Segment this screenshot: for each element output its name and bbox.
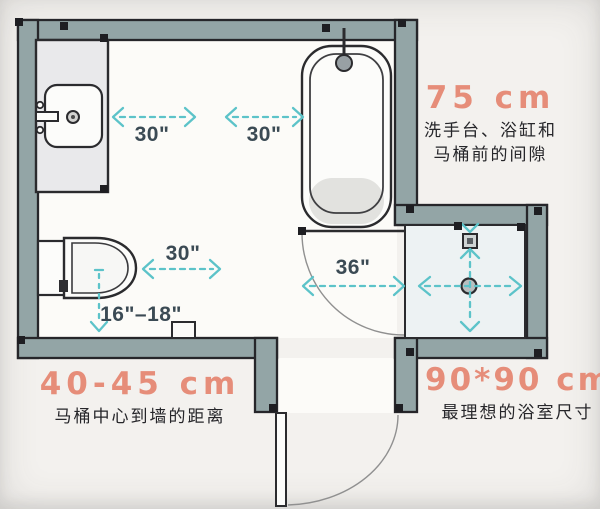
wall-shower-top bbox=[395, 205, 547, 225]
entry-door bbox=[276, 413, 398, 506]
dim-label-toilet-center: 16"–18" bbox=[100, 303, 182, 327]
entry-corridor-floor bbox=[277, 358, 395, 413]
entry-door-leaf bbox=[276, 413, 286, 506]
sink-handle-bottom bbox=[37, 127, 43, 133]
note-toilet-distance: 40-45 cm 马桶中心到墙的距离 bbox=[35, 366, 245, 430]
sink-handle-top bbox=[37, 102, 43, 108]
sink-drain-center bbox=[71, 115, 75, 119]
wall-top bbox=[18, 20, 417, 40]
toilet-flush-icon bbox=[59, 280, 68, 292]
dim-label-doorway-width: 36" bbox=[336, 256, 371, 280]
dim-label-toilet-clearance: 30" bbox=[166, 242, 201, 266]
toilet bbox=[38, 238, 136, 298]
wall-shower-right bbox=[527, 205, 547, 358]
dim-label-sink-clearance: 30" bbox=[135, 123, 170, 147]
note-clearance: 75 cm 洗手台、浴缸和 马桶前的间隙 bbox=[408, 80, 573, 168]
note-toilet-distance-value: 40-45 cm bbox=[35, 366, 245, 402]
note-shower-size-caption: 最理想的浴室尺寸 bbox=[425, 402, 600, 426]
bathtub bbox=[302, 28, 391, 227]
dim-label-tub-clearance: 30" bbox=[247, 123, 282, 147]
note-toilet-distance-caption: 马桶中心到墙的距离 bbox=[35, 406, 245, 430]
note-shower-size-value: 90*90 cm bbox=[425, 362, 600, 398]
shower-head-center bbox=[467, 238, 473, 244]
bathtub-shading bbox=[309, 178, 384, 224]
sink-faucet-icon bbox=[36, 112, 58, 121]
bathroom-floor-plan: 30" 30" 30" 36" 16"–18" 75 cm 洗手台、浴缸和 马桶… bbox=[0, 0, 600, 509]
note-clearance-value: 75 cm bbox=[408, 80, 573, 116]
note-clearance-line1: 洗手台、浴缸和 bbox=[408, 120, 573, 144]
note-clearance-line2: 马桶前的间隙 bbox=[408, 144, 573, 168]
note-shower-size: 90*90 cm 最理想的浴室尺寸 bbox=[425, 362, 600, 426]
sink bbox=[36, 40, 108, 192]
wall-door-stub-left bbox=[255, 338, 277, 412]
entry-door-arc bbox=[288, 415, 398, 505]
wall-bottom-left bbox=[18, 338, 277, 358]
floor-plan-drawing bbox=[0, 0, 600, 509]
tub-faucet-icon bbox=[336, 55, 352, 71]
